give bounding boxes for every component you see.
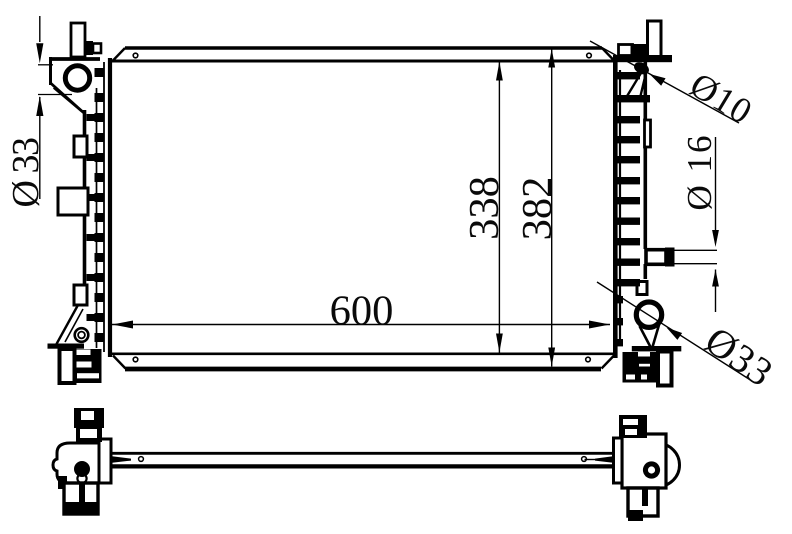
svg-text:Ø 16: Ø 16 [680, 133, 719, 210]
svg-text:600: 600 [330, 287, 394, 334]
svg-text:338: 338 [461, 176, 508, 240]
svg-text:Ø 33: Ø 33 [5, 138, 47, 207]
svg-text:382: 382 [514, 177, 561, 241]
